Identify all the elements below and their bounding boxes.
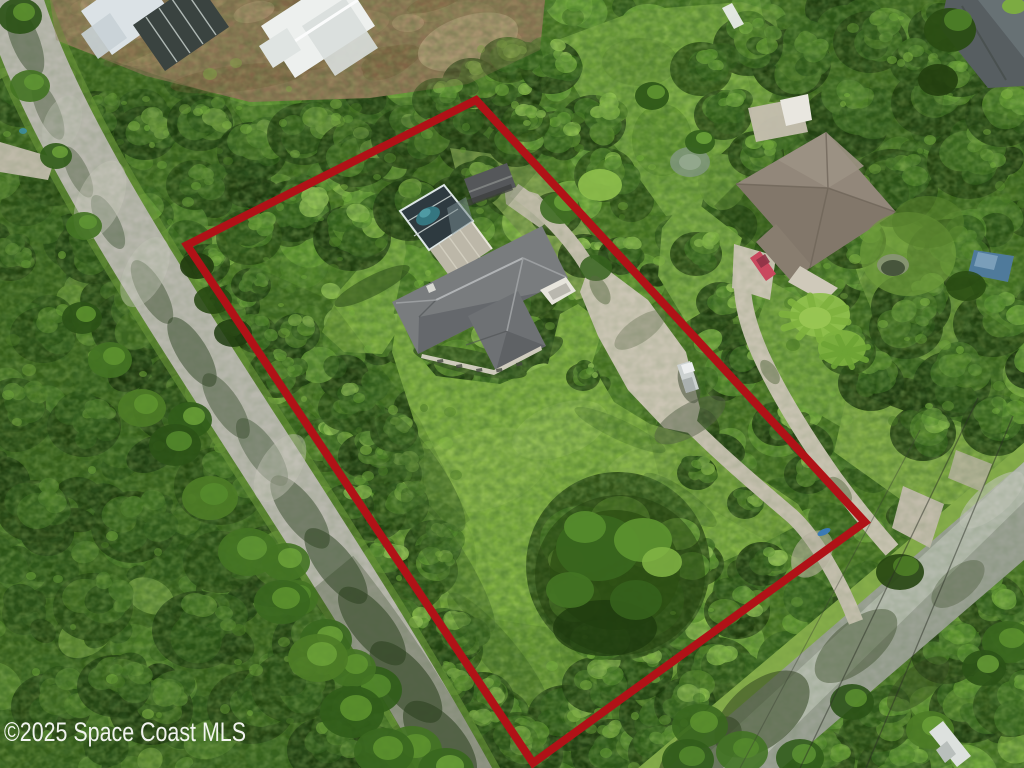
svg-text:©2025 Space Coast MLS: ©2025 Space Coast MLS (4, 717, 246, 747)
